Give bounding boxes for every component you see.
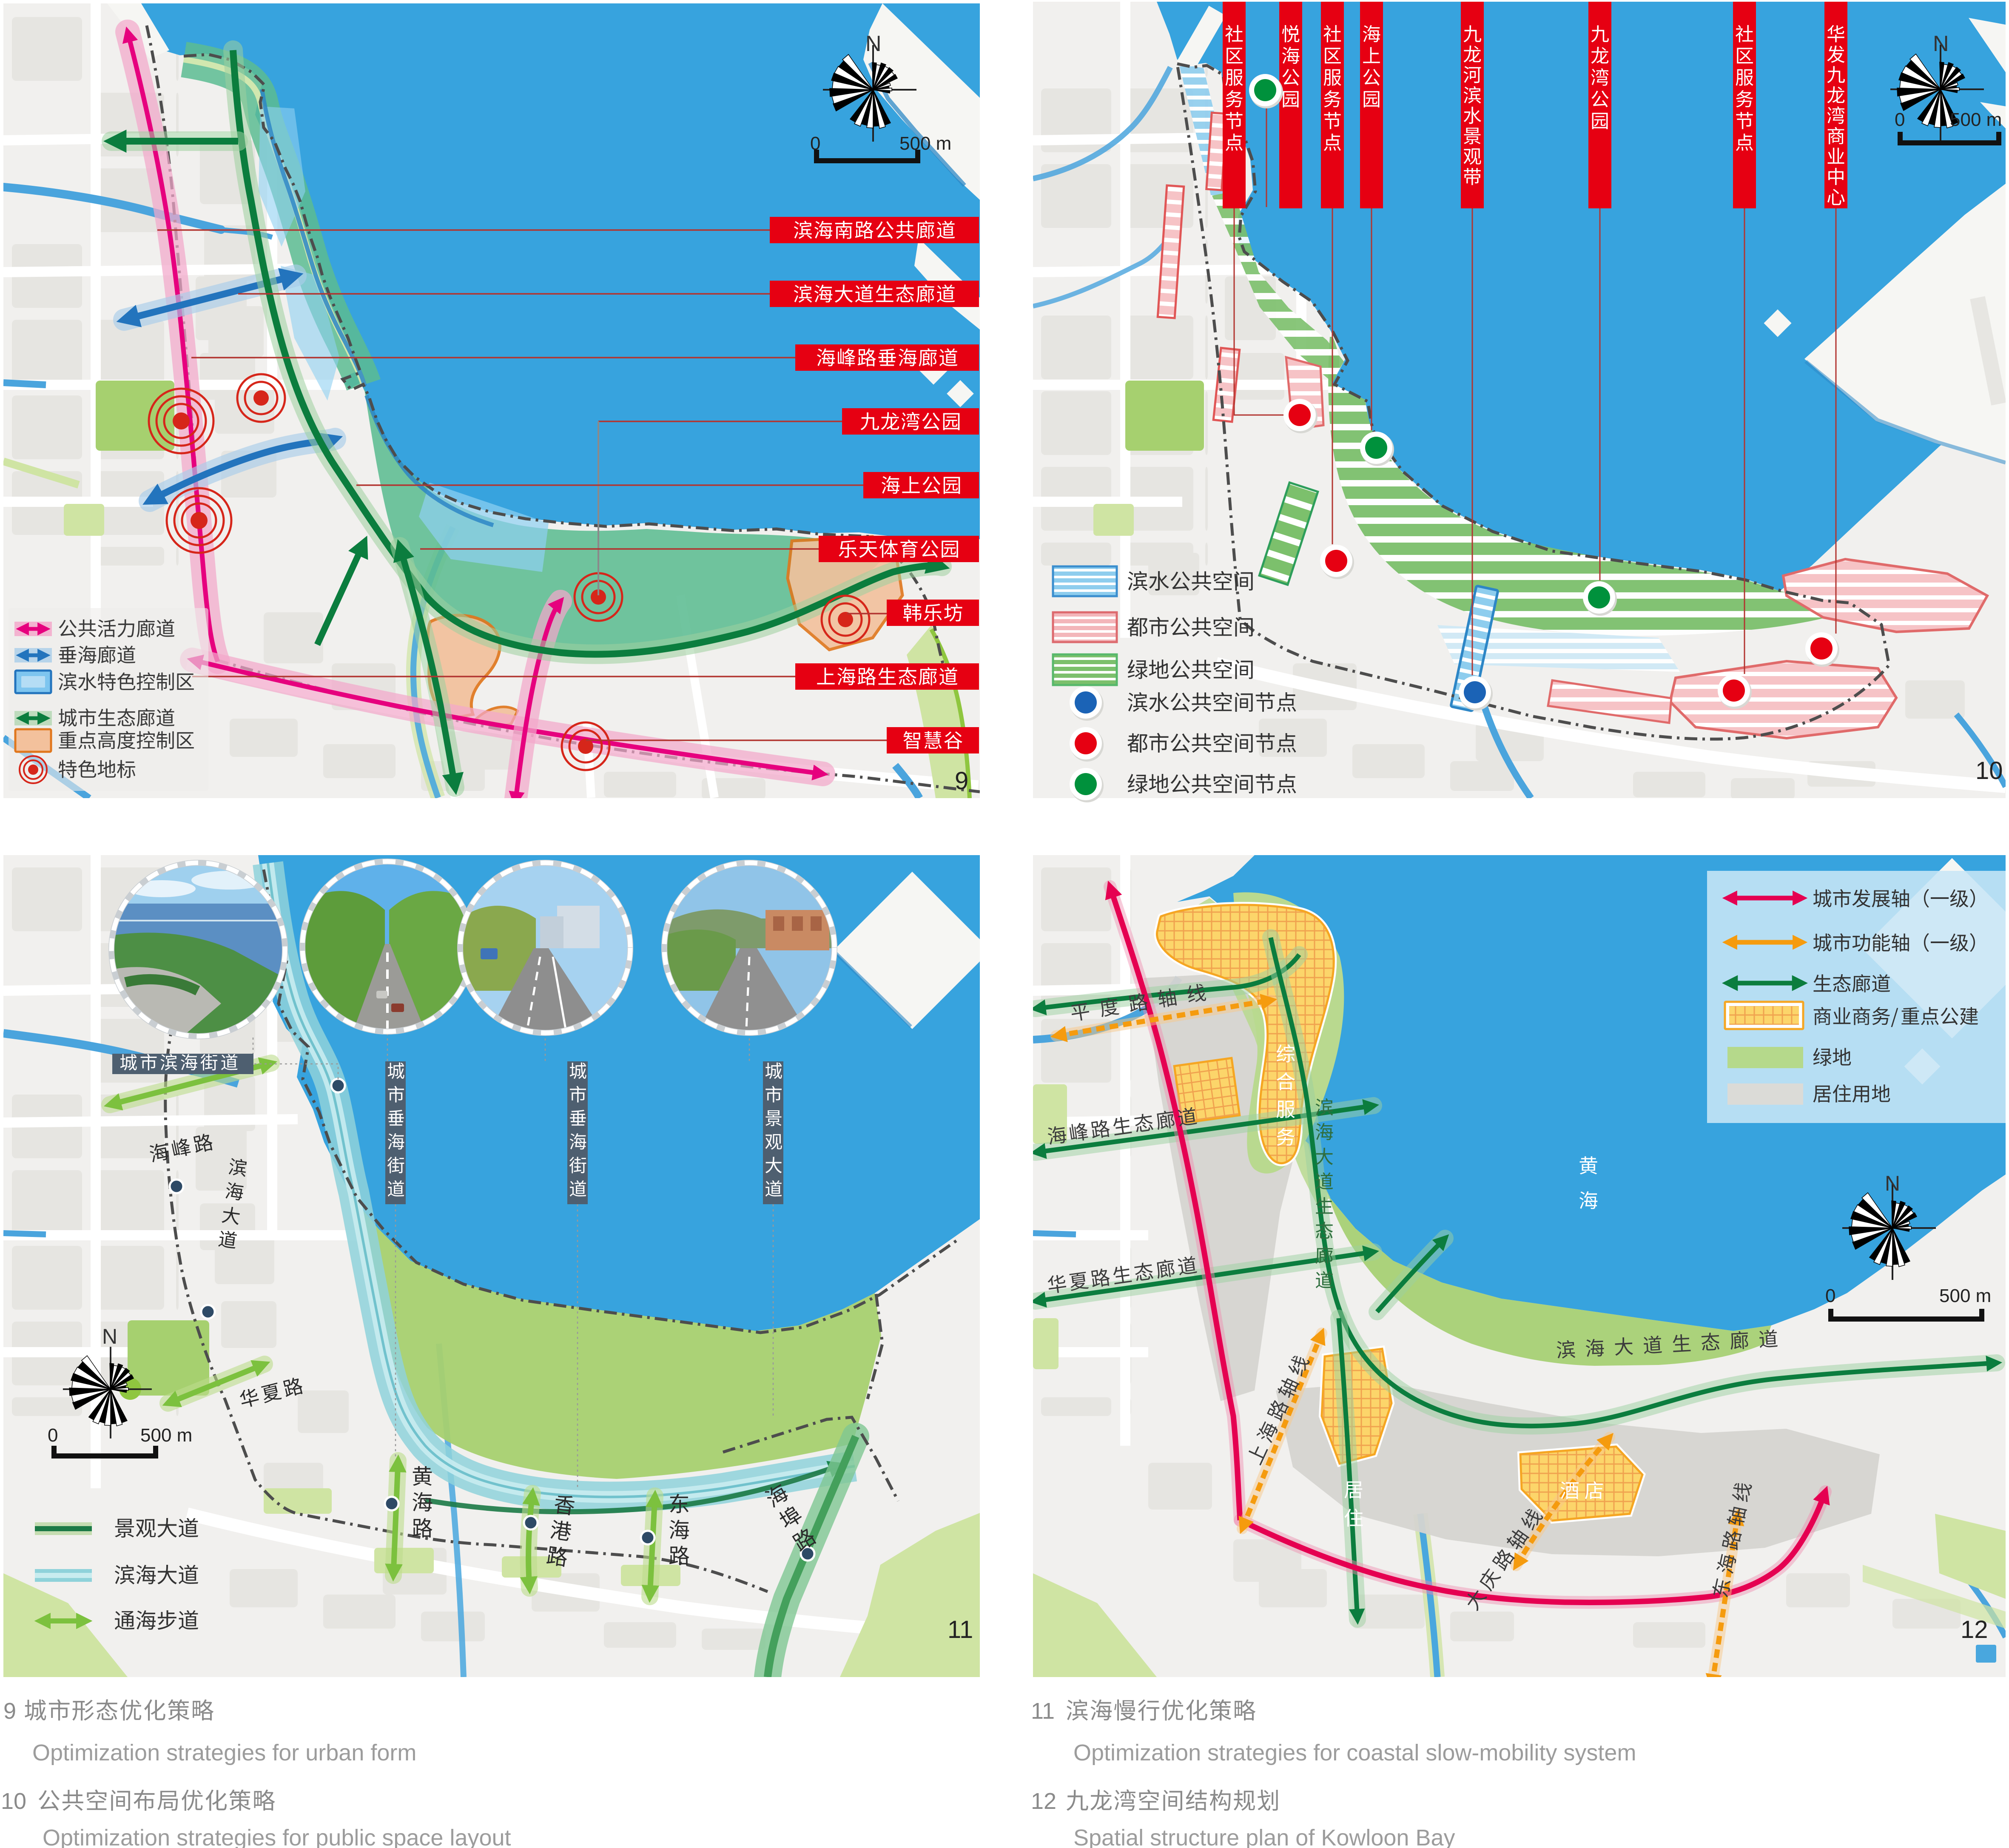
svg-text:500 m: 500 m	[140, 1425, 192, 1446]
svg-text:Optimization strategies for ur: Optimization strategies for urban form	[32, 1740, 416, 1766]
svg-text:Optimization strategies for co: Optimization strategies for coastal slow…	[1073, 1740, 1636, 1766]
svg-text:12: 12	[1031, 1788, 1056, 1814]
svg-text:N: N	[1933, 31, 1949, 56]
svg-text:N: N	[1885, 1171, 1900, 1195]
svg-text:10: 10	[1975, 757, 2003, 785]
svg-text:9: 9	[3, 1698, 16, 1724]
svg-text:10: 10	[1, 1788, 26, 1814]
svg-text:9: 9	[955, 767, 968, 795]
svg-text:500 m: 500 m	[1950, 109, 2002, 130]
svg-text:0: 0	[48, 1425, 58, 1446]
svg-text:12: 12	[1961, 1616, 1988, 1643]
svg-text:0: 0	[1895, 109, 1905, 130]
svg-text:500 m: 500 m	[1939, 1285, 1991, 1306]
svg-text:500 m: 500 m	[899, 133, 951, 154]
svg-text:11: 11	[948, 1616, 973, 1643]
svg-text:Optimization strategies for pu: Optimization strategies for public space…	[43, 1825, 511, 1848]
svg-text:Spatial structure plan of Kowl: Spatial structure plan of Kowloon Bay	[1073, 1825, 1455, 1848]
svg-text:N: N	[102, 1325, 117, 1348]
svg-text:11: 11	[1031, 1698, 1055, 1724]
svg-text:N: N	[865, 31, 882, 56]
svg-text:0: 0	[1825, 1285, 1835, 1306]
